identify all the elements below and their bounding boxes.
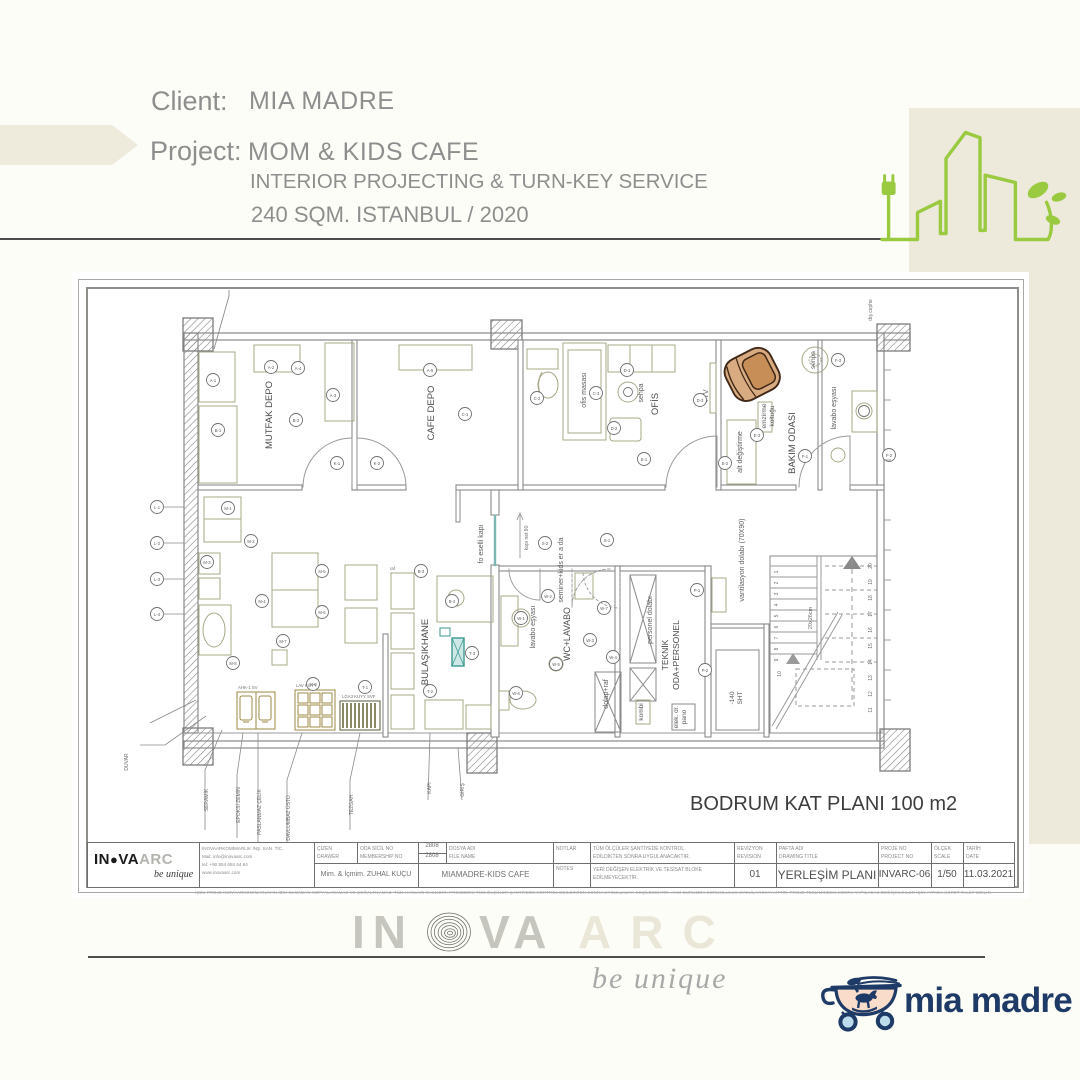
svg-text:K-2: K-2 — [374, 461, 381, 466]
svg-text:M-1: M-1 — [224, 506, 232, 511]
svg-text:C-3: C-3 — [593, 391, 600, 396]
svg-text:fo eselli kapı: fo eselli kapı — [478, 524, 485, 563]
svg-text:SERAMİK: SERAMİK — [203, 788, 210, 811]
svg-text:kombi: kombi — [638, 703, 645, 720]
svg-text:C-2: C-2 — [534, 396, 541, 401]
svg-text:F-1: F-1 — [802, 454, 809, 459]
svg-text:M-4: M-4 — [258, 599, 266, 604]
svg-text:vantilasyon dolabı (70X90): vantilasyon dolabı (70X90) — [739, 519, 746, 602]
svg-text:LGA3 KUYY SVF: LGA3 KUYY SVF — [342, 694, 376, 699]
svg-text:OFİS: OFİS — [650, 393, 661, 415]
svg-text:4: 4 — [774, 603, 780, 606]
svg-text:W-2: W-2 — [544, 594, 552, 599]
svg-text:13: 13 — [868, 675, 874, 681]
svg-text:K-1: K-1 — [334, 461, 341, 466]
svg-text:BODRUM KAT PLANI 100 m2: BODRUM KAT PLANI 100 m2 — [690, 793, 957, 815]
svg-text:M-5: M-5 — [318, 569, 326, 574]
svg-text:P-1: P-1 — [694, 588, 701, 593]
svg-text:E-3: E-3 — [754, 433, 761, 438]
svg-text:S-1: S-1 — [604, 538, 611, 543]
svg-text:1: 1 — [774, 570, 780, 573]
svg-text:personel dolabı: personel dolabı — [647, 596, 654, 644]
svg-text:B-4: B-4 — [449, 599, 456, 604]
svg-text:ODA+PERSONEL: ODA+PERSONEL — [671, 620, 681, 690]
svg-text:-140: -140 — [729, 691, 736, 704]
svg-text:pano: pano — [681, 709, 688, 724]
svg-text:SHT: SHT — [737, 691, 744, 704]
svg-text:B-1: B-1 — [215, 428, 222, 433]
svg-text:6: 6 — [774, 625, 780, 628]
svg-text:20x26cm: 20x26cm — [808, 606, 814, 629]
svg-text:L-3: L-3 — [154, 577, 161, 582]
svg-text:sehpa: sehpa — [810, 351, 817, 369]
svg-text:5: 5 — [774, 614, 780, 617]
svg-text:W-1: W-1 — [517, 616, 525, 621]
svg-text:BAKIM ODASI: BAKIM ODASI — [787, 412, 798, 474]
svg-text:A-1: A-1 — [210, 378, 217, 383]
svg-text:E-2: E-2 — [722, 461, 729, 466]
svg-text:P-2: P-2 — [702, 668, 709, 673]
svg-text:18: 18 — [868, 595, 874, 601]
svg-text:19: 19 — [868, 579, 874, 585]
svg-text:9: 9 — [774, 658, 780, 661]
svg-text:M-2: M-2 — [247, 539, 255, 544]
svg-text:dolap+raf: dolap+raf — [603, 679, 610, 708]
svg-text:PASLANMAZ ÇELİK: PASLANMAZ ÇELİK — [256, 788, 263, 834]
svg-text:MUTFAK DEPO: MUTFAK DEPO — [264, 381, 275, 449]
svg-text:CAFE DEPO: CAFE DEPO — [426, 386, 437, 441]
svg-text:15: 15 — [868, 643, 874, 649]
svg-text:B-3: B-3 — [418, 569, 425, 574]
svg-text:B-2: B-2 — [293, 418, 300, 423]
svg-text:E-1: E-1 — [641, 457, 648, 462]
svg-text:16: 16 — [868, 627, 874, 633]
svg-text:dış cephe: dış cephe — [868, 299, 874, 321]
svg-text:W-3: W-3 — [586, 638, 594, 643]
svg-text:D-1: D-1 — [624, 368, 631, 373]
svg-text:S-2: S-2 — [542, 541, 549, 546]
svg-text:raf: raf — [390, 566, 396, 571]
svg-text:C-1: C-1 — [462, 412, 469, 417]
svg-text:M-3: M-3 — [203, 560, 211, 565]
svg-text:TEKNİK: TEKNİK — [660, 639, 670, 670]
svg-text:L-1: L-1 — [154, 505, 161, 510]
svg-text:10: 10 — [777, 671, 783, 677]
svg-text:DAVLUMBAZ ÜSTÜ: DAVLUMBAZ ÜSTÜ — [285, 795, 292, 841]
svg-text:7: 7 — [774, 636, 780, 639]
svg-text:A-4: A-4 — [295, 366, 302, 371]
svg-text:T-1: T-1 — [362, 685, 369, 690]
svg-text:emzirme: emzirme — [761, 403, 768, 428]
svg-text:F-3: F-3 — [835, 358, 842, 363]
svg-text:11: 11 — [868, 707, 874, 712]
svg-text:T-2: T-2 — [427, 689, 434, 694]
svg-text:AHK-1 SV: AHK-1 SV — [238, 685, 258, 690]
svg-text:W-7: W-7 — [600, 606, 608, 611]
svg-text:KAPI: KAPI — [427, 782, 433, 793]
svg-text:12: 12 — [868, 691, 874, 697]
svg-text:D-2: D-2 — [611, 426, 618, 431]
svg-text:M-7: M-7 — [279, 639, 287, 644]
svg-text:L-2: L-2 — [154, 541, 161, 546]
svg-text:EPOKSİ ZEMİN: EPOKSİ ZEMİN — [235, 787, 242, 823]
svg-text:BULAŞIKHANE: BULAŞIKHANE — [420, 619, 431, 686]
svg-text:W-5: W-5 — [552, 662, 560, 667]
svg-text:lavabo eşyası: lavabo eşyası — [831, 387, 838, 430]
svg-text:M-8: M-8 — [229, 661, 237, 666]
svg-text:TEZGAH: TEZGAH — [349, 794, 355, 815]
svg-text:T-3: T-3 — [469, 651, 476, 656]
svg-text:W-4: W-4 — [609, 655, 617, 660]
svg-text:WC+LAVABO: WC+LAVABO — [562, 607, 572, 661]
svg-text:kapı net 90: kapı net 90 — [524, 525, 530, 550]
svg-text:A-3: A-3 — [330, 393, 337, 398]
svg-text:LAV KUYY: LAV KUYY — [296, 683, 317, 688]
svg-text:2: 2 — [774, 581, 780, 584]
svg-text:8: 8 — [774, 647, 780, 650]
svg-text:F-2: F-2 — [886, 453, 893, 458]
svg-text:A-2: A-2 — [268, 365, 275, 370]
svg-text:L-4: L-4 — [154, 612, 161, 617]
svg-text:17: 17 — [868, 611, 874, 617]
svg-text:W-6: W-6 — [512, 691, 520, 696]
svg-text:seminer+kids er a da: seminer+kids er a da — [558, 537, 565, 602]
svg-text:alt değiştirme: alt değiştirme — [737, 431, 744, 473]
svg-text:M-6: M-6 — [318, 610, 326, 615]
svg-text:sehpa: sehpa — [638, 383, 645, 402]
svg-text:ofis masası: ofis masası — [581, 372, 588, 407]
svg-text:elek. dr.: elek. dr. — [673, 705, 680, 728]
svg-text:GİRİŞ: GİRİŞ — [459, 783, 466, 797]
svg-text:lavabo eşyası: lavabo eşyası — [530, 606, 537, 649]
svg-text:14: 14 — [868, 659, 874, 665]
svg-text:DUVAR: DUVAR — [124, 753, 130, 771]
svg-text:D-3: D-3 — [697, 398, 704, 403]
svg-text:3: 3 — [774, 592, 780, 595]
svg-text:A-5: A-5 — [427, 368, 434, 373]
svg-text:koltuğu: koltuğu — [769, 405, 776, 426]
svg-text:20: 20 — [868, 563, 874, 569]
